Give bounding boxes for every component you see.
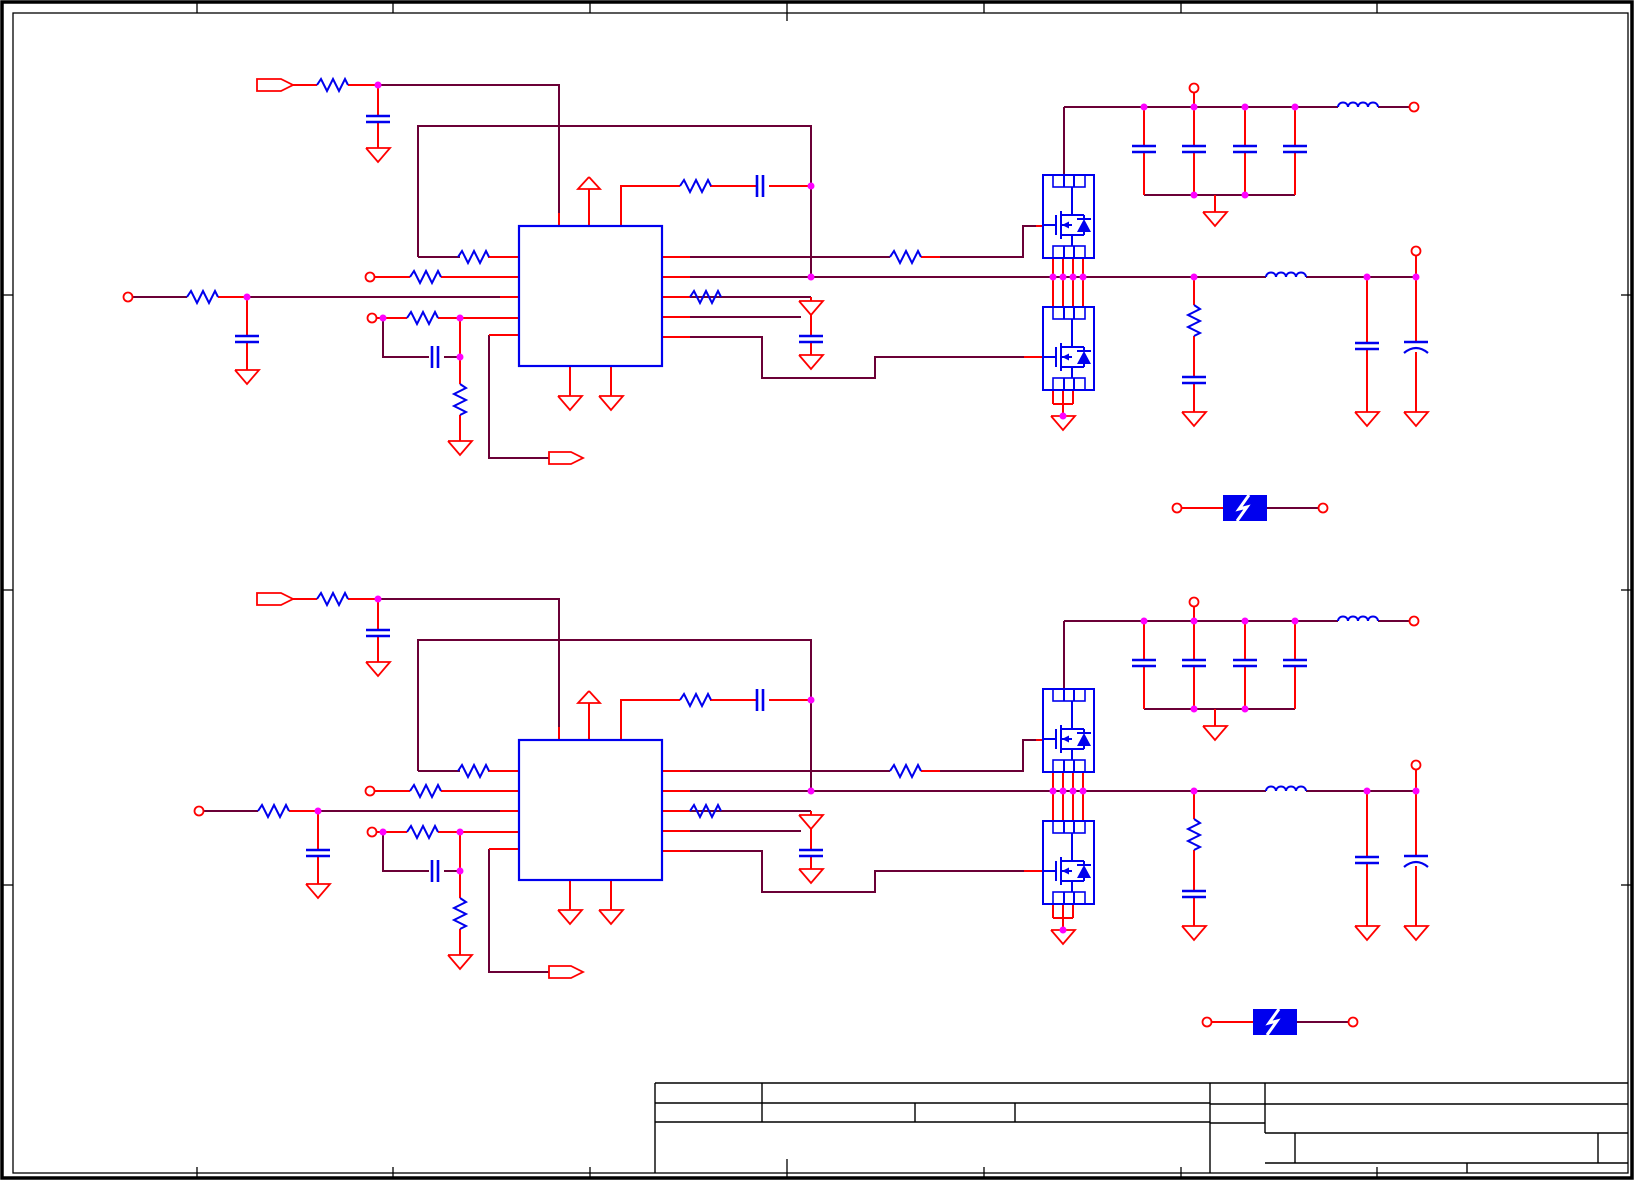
net-junction (1060, 413, 1067, 420)
ground-icon (1404, 412, 1428, 426)
net-junction (1413, 274, 1420, 281)
port-connector (257, 79, 293, 91)
ground-icon (448, 955, 472, 969)
pin-box (1053, 821, 1085, 833)
pin-box (1053, 246, 1085, 258)
wire (378, 599, 559, 727)
resistor (317, 79, 348, 91)
resistor (458, 251, 489, 263)
net-junction (1060, 274, 1067, 281)
terminal-circle (1412, 247, 1421, 256)
mosfet-module (1043, 821, 1094, 904)
body-diode-icon (1077, 865, 1091, 878)
net-junction (1292, 618, 1299, 625)
resistor (410, 271, 441, 283)
resistor (1188, 305, 1200, 336)
pin-box (1053, 175, 1085, 187)
outer-border (2, 2, 1632, 1178)
ground-icon (1355, 926, 1379, 940)
resistor (458, 765, 489, 777)
fuse (1253, 1009, 1297, 1035)
ground-icon (448, 441, 472, 455)
terminal-circle (1410, 103, 1419, 112)
net-junction (1292, 104, 1299, 111)
ground-icon (799, 869, 823, 883)
ground-icon (799, 301, 823, 315)
inductor (1338, 103, 1378, 108)
body-diode-icon (1077, 733, 1091, 746)
net-junction (244, 294, 251, 301)
power-flag-icon (578, 691, 600, 703)
mosfet-arrow (1062, 868, 1069, 875)
wire (690, 851, 1024, 892)
resistor (1188, 819, 1200, 850)
net-junction (380, 829, 387, 836)
net-junction (1242, 192, 1249, 199)
pin-box (1053, 689, 1085, 701)
resistor (410, 785, 441, 797)
port-connector (549, 966, 583, 978)
net-junction (808, 697, 815, 704)
mosfet-module (1043, 175, 1094, 258)
inductor (1266, 787, 1306, 791)
power-flag-icon (578, 177, 600, 189)
mosfet-arrow (1062, 222, 1069, 229)
terminal-circle (1190, 598, 1199, 607)
ground-icon (1182, 412, 1206, 426)
net-junction (1191, 618, 1198, 625)
ic-block (519, 740, 662, 880)
net-junction (1080, 788, 1087, 795)
wire (383, 318, 429, 357)
ground-icon (599, 396, 623, 410)
fuse (1223, 495, 1267, 521)
resistor (680, 180, 711, 192)
wire (690, 337, 1024, 378)
net-junction (1191, 192, 1198, 199)
resistor (317, 593, 348, 605)
ground-icon (799, 355, 823, 369)
terminal-circle (1410, 617, 1419, 626)
ground-icon (306, 884, 330, 898)
terminal-circle (1412, 761, 1421, 770)
ground-icon (1404, 926, 1428, 940)
net-junction (1060, 788, 1067, 795)
schematic-sheet (0, 0, 1634, 1180)
ground-icon (1355, 412, 1379, 426)
net-junction (1070, 274, 1077, 281)
terminal-circle (1349, 1018, 1358, 1027)
terminal-circle (368, 314, 377, 323)
pin-box (1053, 378, 1085, 390)
net-junction (808, 183, 815, 190)
wire (418, 126, 811, 257)
resistor (454, 384, 466, 415)
resistor (680, 694, 711, 706)
schematic-canvas (0, 0, 1634, 1180)
pin-box (1053, 892, 1085, 904)
net-junction (375, 82, 382, 89)
port-connector (549, 452, 583, 464)
body-diode-icon (1077, 219, 1091, 232)
net-junction (1242, 706, 1249, 713)
net-junction (457, 868, 464, 875)
sheet-border (2, 2, 1632, 1178)
wire (621, 700, 680, 740)
inductor (1266, 273, 1306, 278)
net-junction (375, 596, 382, 603)
ground-icon (1203, 212, 1227, 226)
net-junction (1191, 788, 1198, 795)
net-junction (315, 808, 322, 815)
ground-icon (599, 910, 623, 924)
wire (418, 640, 811, 771)
resistor (258, 805, 289, 817)
wire (940, 226, 1036, 257)
ground-icon (366, 148, 390, 162)
net-junction (1141, 104, 1148, 111)
net-junction (1050, 788, 1057, 795)
net-junction (1364, 788, 1371, 795)
terminal-circle (1190, 84, 1199, 93)
net-junction (1242, 104, 1249, 111)
resistor (454, 898, 466, 929)
mosfet-module (1043, 307, 1094, 390)
buck-converter-channel-1 (124, 79, 1429, 521)
terminal-circle (366, 787, 375, 796)
terminal-circle (195, 807, 204, 816)
title-block (655, 1083, 1628, 1173)
ground-icon (1182, 926, 1206, 940)
net-junction (1070, 788, 1077, 795)
terminal-circle (368, 828, 377, 837)
net-junction (808, 274, 815, 281)
terminal-circle (1203, 1018, 1212, 1027)
ground-icon (1203, 726, 1227, 740)
inductor (1338, 617, 1378, 622)
resistor (890, 251, 921, 263)
resistor (187, 291, 218, 303)
resistor (407, 826, 438, 838)
pin-box (1053, 760, 1085, 772)
net-junction (457, 315, 464, 322)
mosfet-module (1043, 689, 1094, 772)
net-junction (457, 354, 464, 361)
net-junction (1364, 274, 1371, 281)
buck-converter-channel-2 (195, 593, 1429, 1035)
net-junction (1242, 618, 1249, 625)
wire (621, 186, 680, 226)
net-junction (1413, 788, 1420, 795)
mosfet-arrow (1062, 736, 1069, 743)
mosfet-arrow (1062, 354, 1069, 361)
port-connector (257, 593, 293, 605)
wire (383, 832, 429, 871)
resistor (890, 765, 921, 777)
net-junction (1191, 104, 1198, 111)
net-junction (1191, 706, 1198, 713)
net-junction (1060, 927, 1067, 934)
net-junction (1141, 618, 1148, 625)
ground-icon (366, 662, 390, 676)
pin-box (1053, 307, 1085, 319)
ground-icon (799, 815, 823, 829)
body-diode-icon (1077, 351, 1091, 364)
ground-icon (558, 910, 582, 924)
net-junction (380, 315, 387, 322)
terminal-circle (366, 273, 375, 282)
wire (940, 740, 1036, 771)
ground-icon (558, 396, 582, 410)
ground-icon (235, 370, 259, 384)
terminal-circle (1173, 504, 1182, 513)
ic-block (519, 226, 662, 366)
net-junction (1050, 274, 1057, 281)
net-junction (808, 788, 815, 795)
net-junction (1080, 274, 1087, 281)
wire (378, 85, 559, 213)
terminal-circle (124, 293, 133, 302)
terminal-circle (1319, 504, 1328, 513)
inner-border (13, 13, 1628, 1173)
net-junction (1191, 274, 1198, 281)
resistor (407, 312, 438, 324)
net-junction (457, 829, 464, 836)
